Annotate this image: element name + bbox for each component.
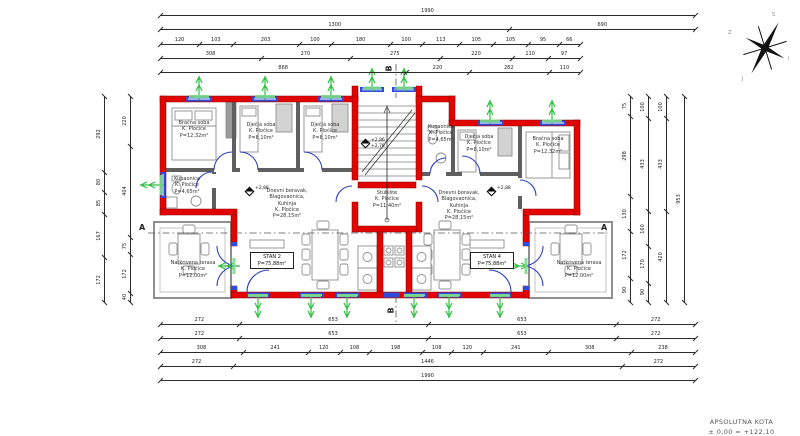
kitchen-left: [358, 246, 377, 290]
dim-value: 272: [654, 359, 664, 365]
dim-value: 120: [319, 345, 329, 351]
dim-value: 653: [328, 331, 338, 337]
elevation-marker-left-unit: +2,88: [246, 186, 269, 195]
dim-value: 272: [651, 317, 661, 323]
dim-value: 238: [658, 345, 668, 351]
dim-value: 95: [540, 37, 546, 43]
dim-value: 868: [278, 65, 288, 71]
dim-value: 198: [391, 345, 401, 351]
dim-value: 292: [96, 129, 102, 139]
dim-value: 108: [350, 345, 360, 351]
dim-value: 110: [525, 51, 535, 57]
dim-value: 105: [506, 37, 516, 43]
dim-value: 653: [517, 317, 527, 323]
dim-value: 272: [195, 331, 205, 337]
dim-chain-left-2: 2204047517240: [130, 96, 131, 302]
dim-chain-right-1: 7529813017290: [630, 96, 631, 302]
dim-value: 90: [622, 287, 628, 293]
dim-chain-top-4: 30827027522011097: [160, 58, 580, 59]
room-label-living-right: Dnevni boravak, Blagovaonica, Kuhinja K.…: [428, 190, 490, 221]
dim-value: 167: [96, 231, 102, 241]
unit-label-stan2: STAN 2 P=75,88m²: [250, 252, 294, 269]
dim-value: 241: [270, 345, 280, 351]
dim-value: 103: [211, 37, 221, 43]
section-marker-a-right: A: [601, 223, 607, 232]
dim-value: 100: [658, 102, 664, 112]
compass-east-label: I: [788, 56, 789, 62]
absolute-elevation-title: APSOLUTNA KOTA: [693, 417, 790, 427]
dim-chain-left-1: 2928085167172: [104, 96, 105, 302]
room-label-kids1-left: Dječja soba K. Pločice P=8,10m²: [238, 122, 284, 141]
room-label-terrace-left: Natkrivena terasa K. Pločice P=12,00m²: [162, 260, 224, 279]
dim-chain-top-2: 1300690: [160, 29, 695, 30]
dim-value: 653: [517, 331, 527, 337]
dim-value: 100: [401, 37, 411, 43]
floor-plan-drawing: [0, 0, 800, 436]
dim-chain-top-5: 868220282110: [160, 72, 580, 73]
dim-value: 308: [206, 51, 216, 57]
dim-value: 241: [511, 345, 521, 351]
dim-value: 270: [301, 51, 311, 57]
dim-chain-bottom-4: 2721446272: [160, 366, 695, 367]
section-marker-b-bottom: B: [387, 307, 396, 313]
dim-value: 172: [622, 250, 628, 260]
dim-value: 100: [310, 37, 320, 43]
dim-value: 404: [122, 187, 128, 197]
unit-label-stan4: STAN 4 P=75,88m²: [470, 252, 514, 269]
dim-value: 275: [390, 51, 400, 57]
dim-value: 75: [122, 242, 128, 248]
elevation-marker-right-unit: +2,88: [488, 186, 511, 195]
dim-value: 203: [261, 37, 271, 43]
dim-value: 172: [122, 269, 128, 279]
dim-value: 308: [585, 345, 595, 351]
dim-value: 80: [96, 179, 102, 185]
dim-value: 272: [195, 317, 205, 323]
kitchen-right: [412, 246, 431, 290]
dim-value: 653: [328, 317, 338, 323]
shaft-appliances: [384, 246, 404, 267]
dim-chain-bottom-3: 308241120108198108120241308238: [160, 352, 695, 353]
sideboard-left: [250, 240, 284, 248]
room-label-kids-right: Dječja soba K. Pločice P=8,10m²: [456, 134, 502, 153]
elevation-marker-stairs: +2,86 +2,79: [362, 138, 385, 150]
dim-value: 220: [433, 65, 443, 71]
absolute-elevation-value: ± 0,00 = +122,10: [693, 427, 790, 436]
elevation-diamond-icon: [487, 187, 497, 197]
dim-value: 308: [197, 345, 207, 351]
dim-value: 66: [566, 37, 572, 43]
dim-value: 105: [472, 37, 482, 43]
dim-value: 120: [175, 37, 185, 43]
compass-south-label: J: [742, 76, 743, 82]
dim-value: 75: [622, 103, 628, 109]
room-label-terrace-right: Natkrivena terasa K. Pločice P=12,00m²: [548, 260, 610, 279]
dim-value: 90: [640, 289, 646, 295]
dim-value: 1990: [421, 373, 434, 379]
room-label-bath-left: Kupaonica K. Pločice P=4,65m²: [164, 176, 210, 195]
section-marker-a-left: A: [139, 223, 145, 232]
dim-chain-top-1: 1990: [160, 15, 695, 16]
elevation-value: +2,88: [255, 186, 269, 192]
dim-value: 108: [432, 345, 442, 351]
dim-value: 272: [651, 331, 661, 337]
dim-value: 272: [192, 359, 202, 365]
dim-chain-top-3: 1201032031001801001131051059566: [160, 44, 580, 45]
sideboard-right: [470, 240, 504, 248]
dim-value: 170: [640, 259, 646, 269]
dim-chain-bottom-2: 272653653272: [160, 338, 695, 339]
dim-value: 130: [622, 209, 628, 219]
absolute-elevation-note: APSOLUTNA KOTA ± 0,00 = +122,10: [693, 417, 790, 436]
elevation-diamond-icon: [361, 139, 371, 149]
dim-value: 180: [356, 37, 366, 43]
dim-value: 113: [436, 37, 446, 43]
elevation-value: +2,86 +2,79: [371, 138, 385, 150]
section-marker-b-top: B: [385, 65, 394, 71]
dim-value: 220: [471, 51, 481, 57]
dim-chain-right-3: 100433420: [666, 96, 667, 302]
compass-west-label: Z: [728, 30, 731, 36]
dim-value: 220: [122, 116, 128, 126]
room-label-kids2-left: Dječja soba K. Pločice P=8,10m²: [302, 122, 348, 141]
dim-value: 282: [504, 65, 514, 71]
dim-value: 172: [96, 275, 102, 285]
dim-value: 690: [597, 22, 607, 28]
dim-value: 1990: [421, 8, 434, 14]
dim-value: 97: [561, 51, 567, 57]
dim-chain-bottom-5: 1990: [160, 380, 695, 381]
dim-value: 1446: [421, 359, 434, 365]
floor-plan-canvas: 1990 1300690 120103203100180100113105105…: [0, 0, 800, 436]
dim-value: 160: [640, 224, 646, 234]
dim-value: 433: [640, 160, 646, 170]
room-label-master-right: Bračna soba K. Pločice P=12,32m²: [524, 136, 572, 155]
dim-chain-right-2: 10043316017090: [648, 96, 649, 302]
dim-value: 100: [640, 102, 646, 112]
dim-value: 433: [658, 160, 664, 170]
elevation-value: +2,88: [497, 186, 511, 192]
dim-value: 420: [658, 252, 664, 262]
room-label-master-left: Bračna soba K. Pločice P=12,32m²: [168, 120, 220, 139]
dim-chain-right-4: 953: [684, 96, 685, 302]
dim-value: 110: [560, 65, 570, 71]
dim-chain-bottom-1: 272653653272: [160, 324, 695, 325]
dim-value: 298: [622, 152, 628, 162]
dim-value: 1300: [328, 22, 341, 28]
compass-icon: [732, 12, 798, 84]
dining-set-left: [302, 221, 348, 289]
elevation-diamond-icon: [245, 187, 255, 197]
room-label-stairs: Stubište K. Pločice P=11,40m²: [356, 190, 418, 209]
dim-value: 953: [676, 194, 682, 204]
compass-north-label: S: [772, 12, 775, 18]
dim-value: 85: [96, 200, 102, 206]
dim-value: 120: [463, 345, 473, 351]
